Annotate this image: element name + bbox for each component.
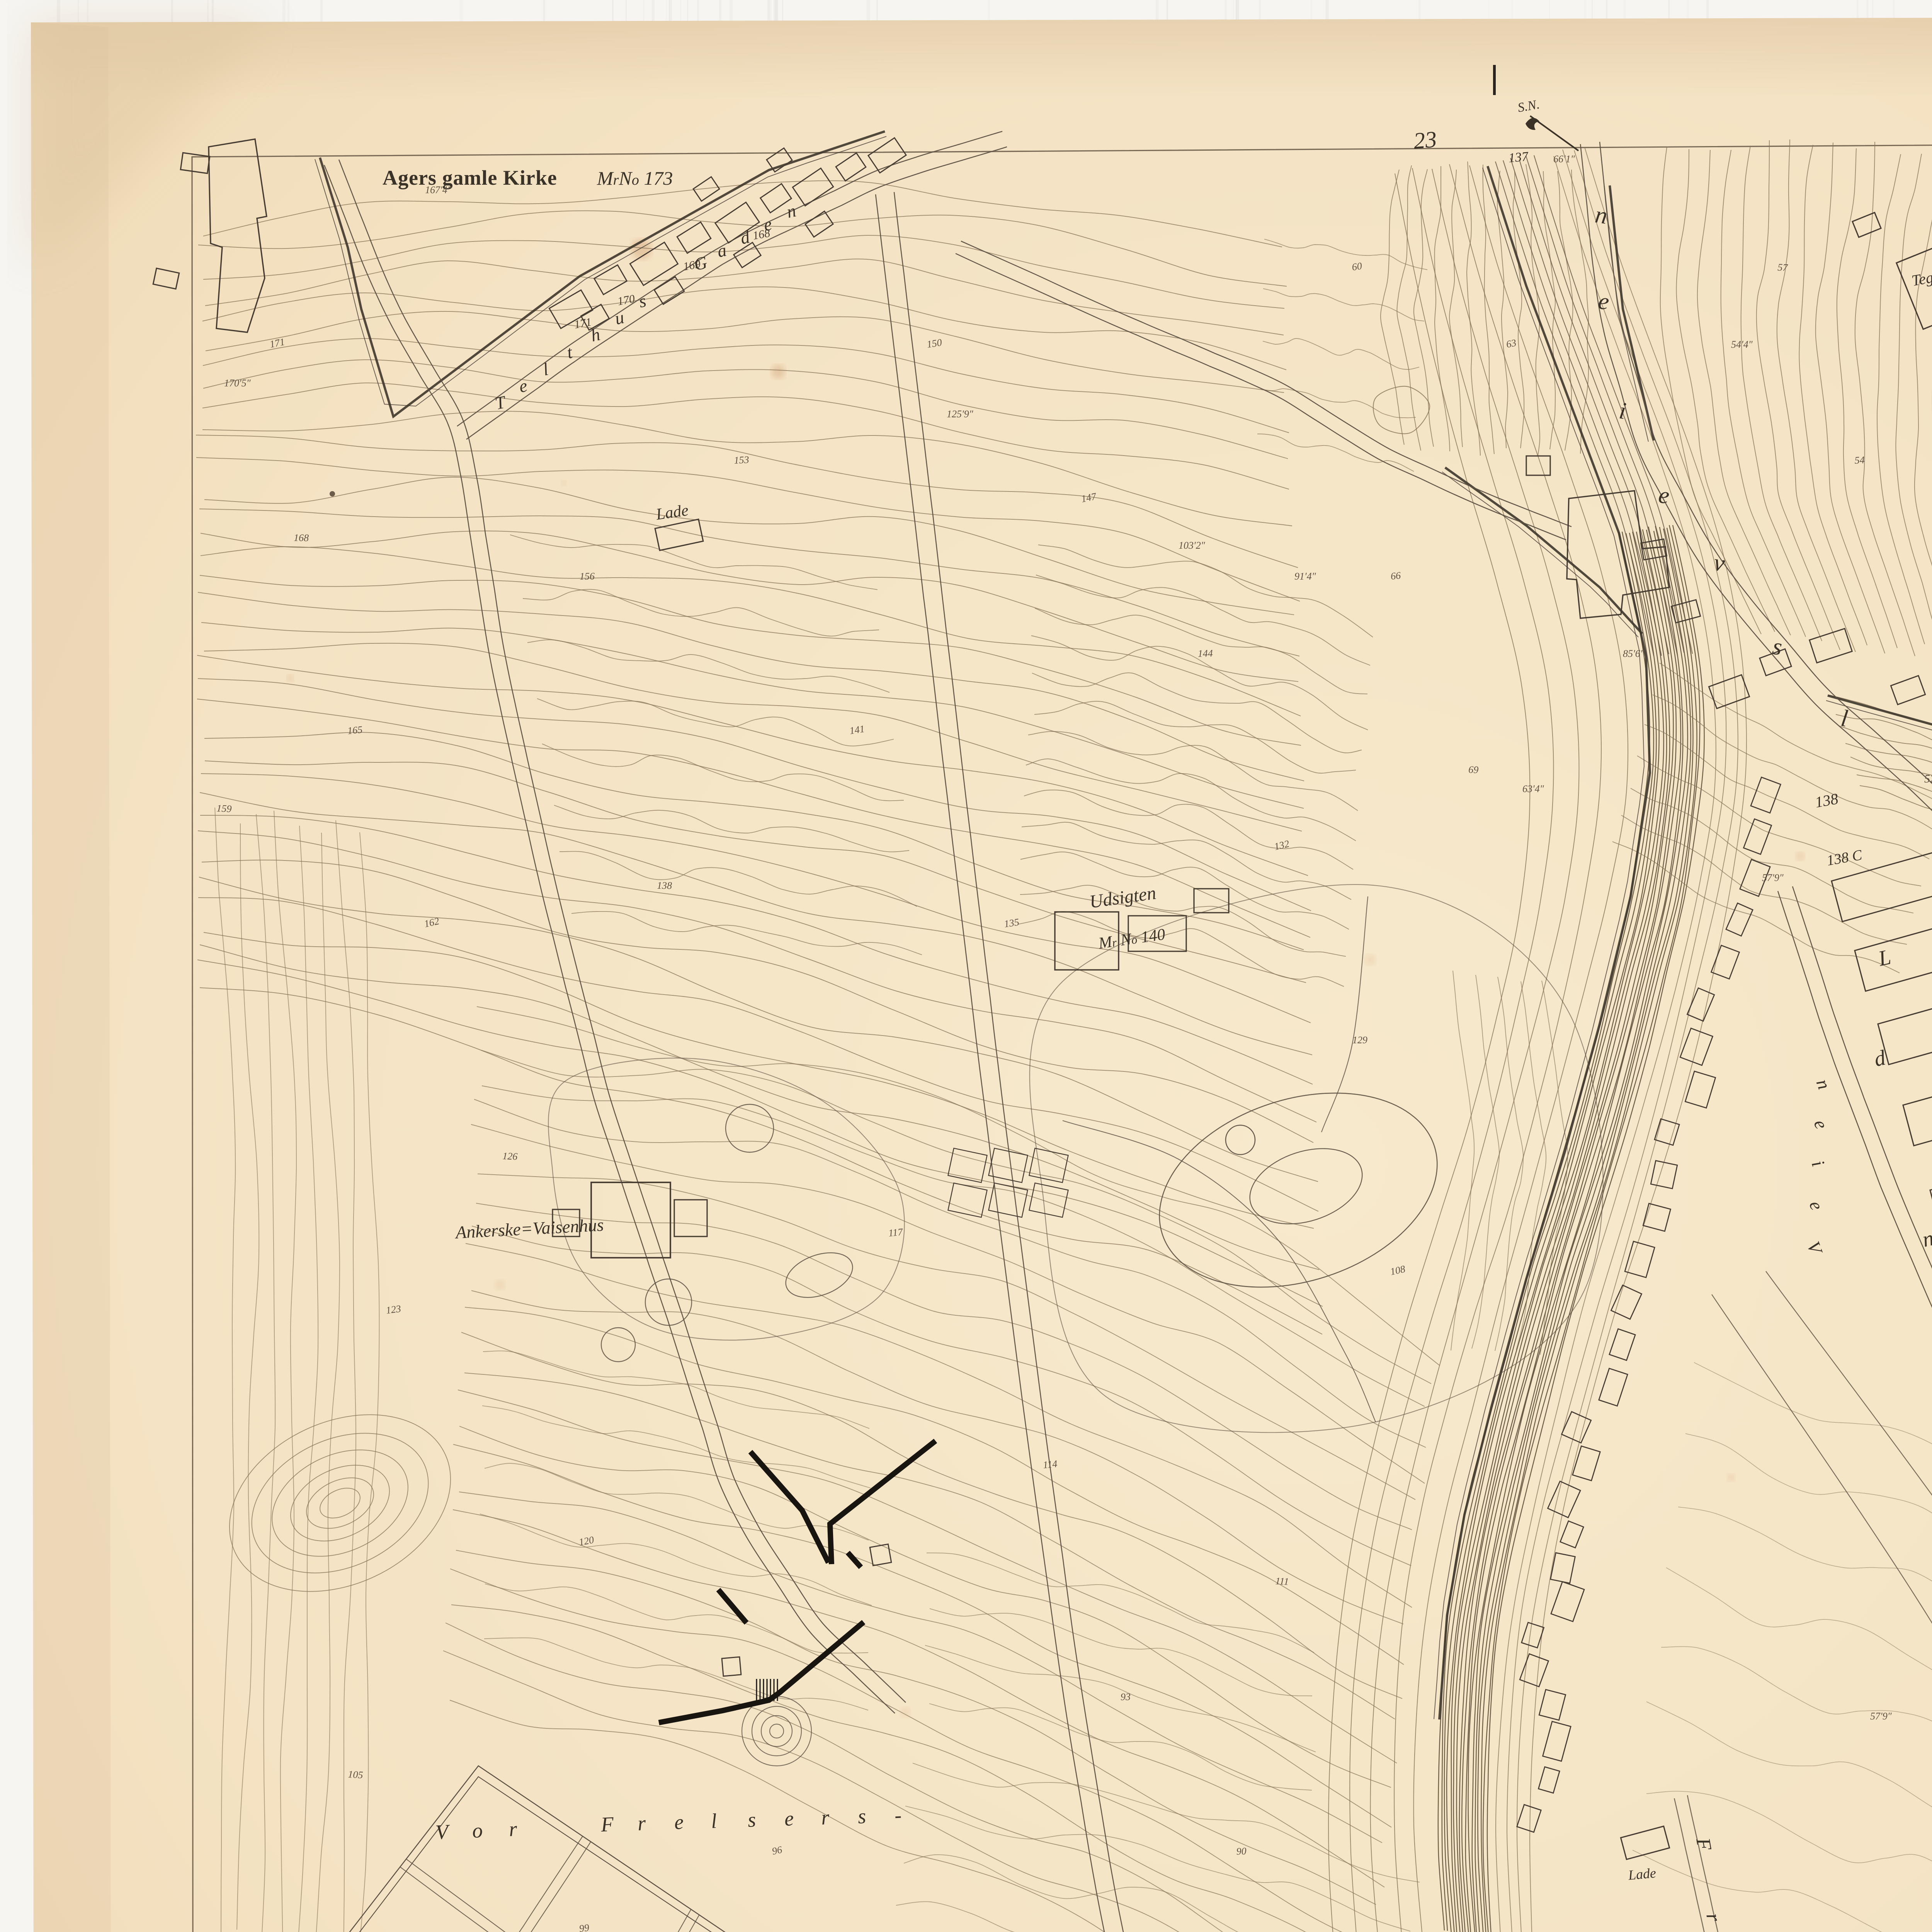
svg-text:137: 137 (1508, 149, 1529, 165)
svg-text:Agers gamle Kirke: Agers gamle Kirke (383, 166, 557, 189)
svg-text:111: 111 (1275, 1575, 1289, 1587)
svg-text:129: 129 (1352, 1034, 1367, 1046)
svg-text:135: 135 (1003, 917, 1020, 930)
svg-text:r: r (637, 1811, 646, 1835)
svg-text:57′9″: 57′9″ (1762, 872, 1784, 883)
svg-text:s: s (857, 1804, 866, 1828)
svg-text:-: - (894, 1803, 902, 1827)
svg-text:54′4″: 54′4″ (1731, 339, 1753, 350)
svg-text:69: 69 (1468, 764, 1479, 776)
svg-text:r: r (820, 1806, 830, 1829)
svg-text:150: 150 (926, 337, 943, 350)
svg-text:60: 60 (1351, 260, 1363, 273)
svg-text:o: o (471, 1819, 483, 1842)
svg-text:117: 117 (888, 1226, 904, 1239)
svg-text:63′4″: 63′4″ (1522, 783, 1544, 794)
svg-text:91′4″: 91′4″ (1294, 571, 1316, 582)
svg-text:156: 156 (580, 571, 595, 582)
svg-text:168: 168 (294, 532, 309, 543)
svg-text:66′1″: 66′1″ (1553, 153, 1575, 165)
svg-text:126: 126 (502, 1150, 518, 1162)
svg-text:165: 165 (347, 724, 363, 736)
svg-text:90: 90 (1236, 1845, 1247, 1857)
svg-text:r: r (508, 1817, 518, 1841)
svg-text:138: 138 (657, 880, 672, 891)
svg-text:57: 57 (1777, 262, 1788, 273)
svg-text:125′9″: 125′9″ (947, 408, 974, 420)
svg-text:66: 66 (1390, 570, 1401, 582)
svg-text:141: 141 (849, 723, 866, 736)
svg-text:e: e (673, 1810, 684, 1834)
svg-text:123: 123 (385, 1303, 401, 1316)
svg-text:159: 159 (216, 803, 232, 815)
svg-text:23: 23 (1412, 126, 1438, 154)
svg-text:153: 153 (734, 454, 750, 466)
svg-text:54: 54 (1854, 454, 1865, 466)
svg-text:114: 114 (1043, 1458, 1058, 1471)
svg-text:52′0″: 52′0″ (1924, 772, 1932, 785)
svg-text:85′6″: 85′6″ (1623, 648, 1645, 659)
svg-text:l: l (710, 1809, 717, 1833)
svg-text:103′2″: 103′2″ (1179, 540, 1206, 551)
svg-text:F: F (600, 1812, 614, 1836)
svg-text:Lade: Lade (1627, 1865, 1656, 1883)
svg-text:s: s (747, 1808, 756, 1832)
svg-text:57′9″: 57′9″ (1870, 1711, 1892, 1722)
svg-text:e: e (784, 1807, 794, 1830)
svg-text:93: 93 (1121, 1691, 1131, 1702)
svg-text:105: 105 (348, 1769, 364, 1781)
svg-text:99: 99 (578, 1922, 590, 1932)
svg-text:144: 144 (1197, 648, 1213, 659)
svg-text:167′4″: 167′4″ (425, 184, 452, 196)
svg-text:170′5″: 170′5″ (224, 378, 251, 389)
